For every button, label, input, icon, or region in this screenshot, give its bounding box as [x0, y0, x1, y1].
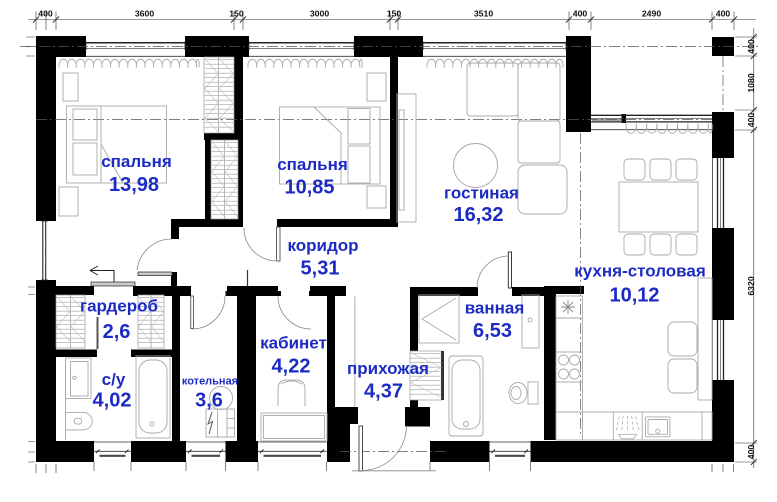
- svg-text:3600: 3600: [135, 9, 154, 19]
- svg-text:10,12: 10,12: [609, 284, 659, 306]
- svg-text:2,6: 2,6: [103, 321, 131, 343]
- svg-text:150: 150: [387, 9, 402, 19]
- svg-text:гардероб: гардероб: [80, 297, 158, 316]
- svg-text:кухня-столовая: кухня-столовая: [574, 262, 706, 281]
- svg-text:150: 150: [229, 9, 244, 19]
- svg-text:16,32: 16,32: [453, 204, 503, 226]
- svg-text:400: 400: [746, 39, 756, 54]
- svg-text:3000: 3000: [310, 9, 329, 19]
- svg-text:400: 400: [746, 445, 756, 460]
- svg-text:котельная: котельная: [182, 376, 238, 388]
- svg-text:коридор: коридор: [287, 236, 358, 255]
- svg-text:400: 400: [746, 113, 756, 128]
- svg-text:4,37: 4,37: [364, 381, 403, 403]
- svg-text:ванная: ванная: [465, 299, 525, 318]
- svg-text:спальня: спальня: [277, 155, 348, 174]
- svg-text:6320: 6320: [746, 276, 756, 295]
- svg-text:4,02: 4,02: [93, 390, 132, 412]
- svg-text:2490: 2490: [642, 9, 661, 19]
- svg-text:400: 400: [38, 9, 53, 19]
- svg-text:10,85: 10,85: [284, 177, 334, 199]
- svg-text:гостиная: гостиная: [444, 183, 519, 202]
- svg-text:с/у: с/у: [102, 370, 126, 389]
- svg-text:1080: 1080: [746, 73, 756, 92]
- svg-text:5,31: 5,31: [301, 258, 340, 280]
- svg-text:13,98: 13,98: [109, 174, 159, 196]
- svg-text:6,53: 6,53: [473, 320, 512, 342]
- svg-text:400: 400: [716, 9, 731, 19]
- svg-text:4,22: 4,22: [272, 356, 311, 378]
- svg-text:спальня: спальня: [101, 152, 172, 171]
- svg-text:400: 400: [573, 9, 588, 19]
- svg-text:3510: 3510: [474, 9, 493, 19]
- svg-text:кабинет: кабинет: [260, 334, 327, 353]
- svg-text:прихожая: прихожая: [347, 359, 429, 378]
- svg-text:3,6: 3,6: [195, 390, 223, 412]
